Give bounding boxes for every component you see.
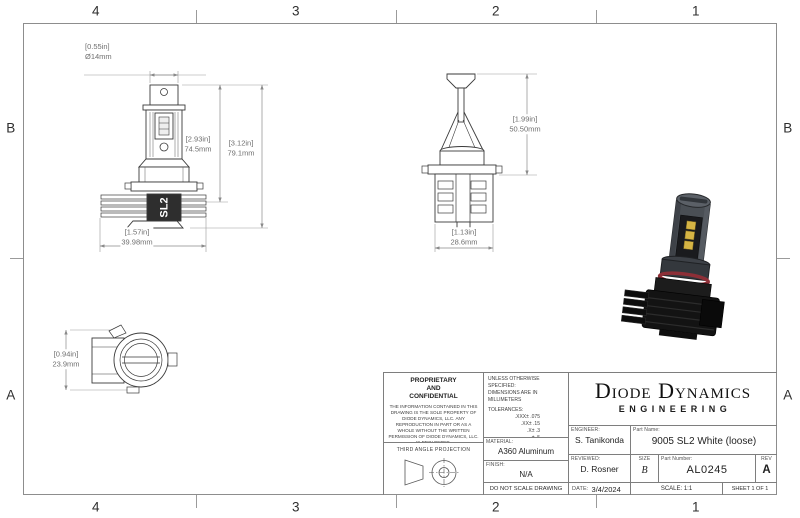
dim-front-height2: [3.12in]79.1mm xyxy=(226,138,255,158)
spec-line-1: UNLESS OTHERWISE SPECIFIED: xyxy=(488,376,564,390)
third-angle-symbol xyxy=(399,455,469,491)
finish-cell: FINISH: N/A xyxy=(483,460,568,482)
proprietary-notice: PROPRIETARY AND CONFIDENTIAL THE INFORMA… xyxy=(383,372,483,442)
front-view: SL2 xyxy=(101,85,206,228)
third-angle-label: THIRD ANGLE PROJECTION xyxy=(384,443,483,453)
rev-label: REV xyxy=(756,455,777,462)
drawing-sheet: 4 3 2 1 4 3 2 1 B A B A xyxy=(0,0,800,518)
tolerance-line: .XXX± .075 xyxy=(500,414,540,421)
material-value: A360 Aluminum xyxy=(484,447,568,456)
size-label: SIZE xyxy=(631,455,658,462)
dim-front-width: [1.57in]39.98mm xyxy=(120,227,153,247)
finish-label: FINISH: xyxy=(484,461,568,468)
size-cell: SIZE B xyxy=(630,454,658,482)
part-name-value: 9005 SL2 White (loose) xyxy=(631,436,777,447)
dim-side-width: [1.13in]28.6mm xyxy=(449,227,478,247)
tolerance-block: UNLESS OTHERWISE SPECIFIED: DIMENSIONS A… xyxy=(483,372,568,437)
part-number-cell: Part Number: AL0245 xyxy=(658,454,755,482)
size-value: B xyxy=(631,465,658,476)
engineer-label: ENGINEER: xyxy=(569,426,630,433)
proprietary-body: THE INFORMATION CONTAINED IN THIS DRAWIN… xyxy=(388,404,479,442)
do-not-scale-note: DO NOT SCALE DRAWING xyxy=(483,482,568,495)
part-number-value: AL0245 xyxy=(659,464,755,476)
company-subtitle: ENGINEERING xyxy=(569,404,777,414)
sl2-logo: SL2 xyxy=(159,197,171,217)
engineer-cell: ENGINEER: S. Tanikonda xyxy=(568,425,630,454)
part-name-cell: Part Name: 9005 SL2 White (loose) xyxy=(630,425,777,454)
dim-top-height: [0.94in]23.9mm xyxy=(51,349,80,369)
tolerance-line: .XX± .15 xyxy=(500,421,540,428)
proprietary-title: PROPRIETARY AND CONFIDENTIAL xyxy=(407,377,461,401)
material-label: MATERIAL: xyxy=(484,438,568,445)
dim-front-diameter: [0.55in]Ø14mm xyxy=(84,42,113,62)
finish-value: N/A xyxy=(484,470,568,479)
engineer-value: S. Tanikonda xyxy=(569,435,630,445)
reviewed-cell: REVIEWED: D. Rosner xyxy=(568,454,630,482)
tolerances-label: TOLERANCES: xyxy=(488,407,564,414)
scale-cell: SCALE: 1:1 xyxy=(630,482,722,495)
dim-front-height1: [2.93in]74.5mm xyxy=(183,134,212,154)
connector-block xyxy=(699,299,724,327)
part-number-label: Part Number: xyxy=(659,455,755,462)
third-angle-projection: THIRD ANGLE PROJECTION xyxy=(383,442,483,495)
company-logo: Diode Dynamics ENGINEERING xyxy=(568,372,777,425)
material-cell: MATERIAL: A360 Aluminum xyxy=(483,437,568,460)
rev-cell: REV A xyxy=(755,454,777,482)
dim-side-height: [1.99in]50.50mm xyxy=(508,114,541,134)
reviewed-value: D. Rosner xyxy=(569,464,630,474)
rev-value: A xyxy=(756,464,777,476)
side-view xyxy=(422,74,502,229)
date-value: 3/4/2024 xyxy=(592,485,621,494)
isometric-render xyxy=(620,187,737,343)
part-name-label: Part Name: xyxy=(631,426,777,433)
sheet-cell: SHEET 1 OF 1 xyxy=(722,482,777,495)
reviewed-label: REVIEWED: xyxy=(569,455,630,462)
title-block: PROPRIETARY AND CONFIDENTIAL THE INFORMA… xyxy=(383,372,777,495)
date-label: DATE: xyxy=(572,486,589,492)
top-view xyxy=(92,325,177,393)
tolerance-line: .X± .3 xyxy=(500,428,540,435)
date-cell: DATE: 3/4/2024 xyxy=(568,482,630,495)
company-name: Diode Dynamics xyxy=(569,380,777,402)
spec-line-2: DIMENSIONS ARE IN MILLIMETERS xyxy=(488,390,564,404)
